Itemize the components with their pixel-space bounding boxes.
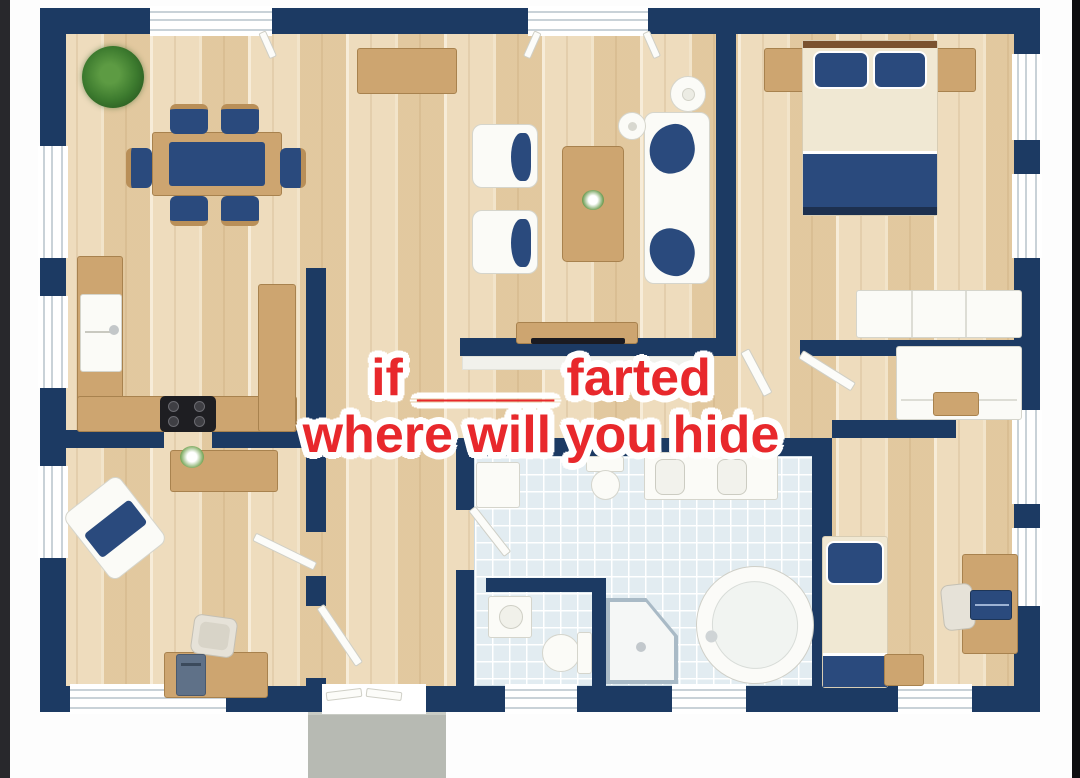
dining-table-runner bbox=[169, 142, 265, 186]
nightstand-left bbox=[764, 48, 806, 92]
single-bed bbox=[822, 536, 888, 688]
window-bottom-bath-1 bbox=[505, 684, 577, 714]
meme-line-2: where will you hide bbox=[10, 407, 1072, 464]
sofa-pillow bbox=[644, 224, 700, 280]
printer-slot bbox=[181, 663, 201, 666]
dining-chair bbox=[170, 104, 208, 134]
armchair-1 bbox=[472, 124, 538, 188]
armchair-cushion bbox=[511, 133, 531, 181]
meme-line1-after: farted bbox=[566, 349, 710, 407]
nightstand-bed2 bbox=[884, 654, 924, 686]
dining-chair bbox=[170, 196, 208, 226]
nightstand-right bbox=[934, 48, 976, 92]
side-table-round bbox=[670, 76, 706, 112]
window-top-living bbox=[528, 6, 648, 36]
dining-chair bbox=[280, 148, 306, 188]
office-printer bbox=[176, 654, 206, 696]
window-left-dining bbox=[38, 146, 68, 258]
bed-footboard bbox=[803, 207, 937, 215]
window-right-bedroom1-a bbox=[1012, 54, 1042, 140]
wall-bath-west-upper bbox=[456, 456, 474, 510]
tv-screen bbox=[531, 338, 625, 344]
wall-wc-vertical bbox=[592, 592, 606, 688]
sofa-pillow bbox=[644, 120, 700, 178]
living-sideboard bbox=[357, 48, 457, 94]
bed-blanket bbox=[803, 151, 937, 207]
wall-bath-west-lower bbox=[456, 570, 474, 688]
dining-chair bbox=[126, 148, 152, 188]
meme-blank: _____ bbox=[417, 349, 552, 407]
lamp-center bbox=[628, 122, 637, 131]
left-edge-bar bbox=[0, 0, 10, 778]
table-flowers bbox=[582, 190, 604, 210]
bed-headboard bbox=[803, 41, 937, 48]
office-chair bbox=[189, 613, 238, 659]
armchair-2 bbox=[472, 210, 538, 274]
bed-pillow bbox=[813, 51, 869, 89]
window-right-bedroom1-b bbox=[1012, 174, 1042, 258]
shower-drain bbox=[636, 642, 646, 652]
vase bbox=[682, 88, 695, 101]
vanity-sink bbox=[655, 459, 685, 495]
wall-hallway-left-mid bbox=[306, 576, 326, 606]
tv-bench bbox=[516, 322, 638, 344]
potted-plant bbox=[82, 46, 144, 108]
office-chair-pad bbox=[197, 621, 230, 651]
meme-caption: if _____ farted where will you hide bbox=[10, 350, 1072, 464]
dining-chair bbox=[221, 104, 259, 134]
wall-wc-horizontal bbox=[486, 578, 606, 592]
wc-toilet-bowl bbox=[542, 634, 580, 672]
wc-sink-cabinet bbox=[488, 596, 532, 638]
double-bed bbox=[802, 40, 938, 216]
bed2-pillow bbox=[826, 541, 884, 585]
sofa bbox=[644, 112, 710, 284]
window-top-dining bbox=[150, 6, 272, 36]
bath-cabinet bbox=[476, 462, 520, 508]
window-bottom-bedroom2 bbox=[898, 684, 972, 714]
entrance-doormat bbox=[308, 712, 446, 778]
floor-plan-meme-image: if _____ farted where will you hide bbox=[0, 0, 1080, 778]
armchair-throw bbox=[84, 499, 148, 558]
window-left-office bbox=[38, 466, 68, 558]
floor-lamp bbox=[618, 112, 646, 140]
bed2-blanket bbox=[823, 653, 887, 687]
vanity-sink bbox=[717, 459, 747, 495]
meme-line-1: if _____ farted bbox=[10, 350, 1072, 407]
wc-toilet-tank bbox=[577, 632, 592, 674]
laptop-screen-line bbox=[975, 604, 1009, 606]
toilet-bowl bbox=[591, 470, 620, 500]
sink-faucet bbox=[109, 325, 119, 335]
meme-line1-before: if bbox=[371, 349, 403, 407]
bed-pillow bbox=[873, 51, 927, 89]
laptop bbox=[970, 590, 1012, 620]
wall-living-bedroom1 bbox=[716, 8, 736, 356]
right-edge-bar bbox=[1072, 0, 1080, 778]
bedroom1-dresser bbox=[856, 290, 1022, 338]
armchair-cushion bbox=[511, 219, 531, 267]
dining-chair bbox=[221, 196, 259, 226]
wc-sink-bowl bbox=[499, 605, 523, 629]
